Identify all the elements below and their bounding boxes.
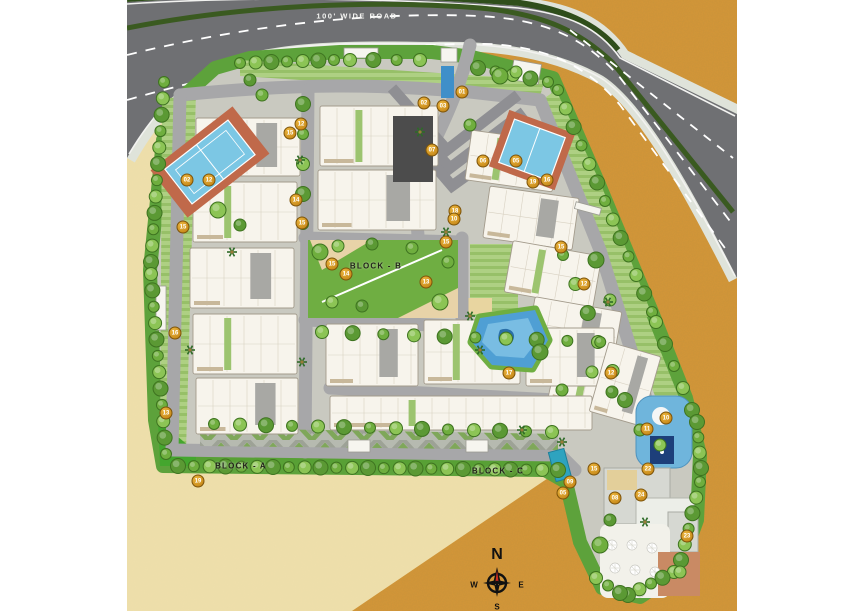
amenity-marker: 15: [296, 217, 309, 230]
compass-north-label: N: [491, 546, 503, 564]
amenity-marker: 24: [635, 489, 648, 502]
amenity-marker: 12: [578, 278, 591, 291]
amenity-marker: 16: [541, 174, 554, 187]
amenity-marker: 15: [326, 258, 339, 271]
amenity-marker: 16: [169, 327, 182, 340]
amenity-marker: 22: [642, 463, 655, 476]
amenity-marker: 03: [437, 100, 450, 113]
amenity-marker: 08: [609, 492, 622, 505]
amenity-marker: 11: [641, 423, 654, 436]
entry-water-feature: [441, 66, 454, 98]
amenity-marker: 15: [555, 241, 568, 254]
amenity-marker: 14: [340, 268, 353, 281]
amenity-marker: 15: [284, 127, 297, 140]
compass-south-label: S: [494, 603, 499, 611]
amenity-marker: 10: [660, 412, 673, 425]
amenity-marker: 12: [295, 118, 308, 131]
siteplan-illustration: [0, 0, 864, 611]
amenity-marker: 02: [181, 174, 194, 187]
masterplan-canvas: 100' WIDE ROAD BLOCK - ABLOCK - BBLOCK -…: [0, 0, 864, 611]
compass: N W E S: [452, 543, 544, 611]
amenity-marker: 19: [192, 475, 205, 488]
amenity-marker: 15: [588, 463, 601, 476]
amenity-marker: 15: [177, 221, 190, 234]
amenity-marker: 23: [681, 530, 694, 543]
amenity-marker: 19: [527, 176, 540, 189]
amenity-marker: 14: [290, 194, 303, 207]
amenity-marker: 10: [448, 213, 461, 226]
compass-west-label: W: [470, 581, 478, 590]
amenity-marker: 05: [510, 155, 523, 168]
amenity-marker: 05: [557, 487, 570, 500]
amenity-marker: 02: [418, 97, 431, 110]
compass-east-label: E: [518, 581, 523, 590]
amenity-marker: 01: [456, 86, 469, 99]
amenity-marker: 12: [203, 174, 216, 187]
amenity-marker: 15: [440, 236, 453, 249]
amenity-marker: 07: [426, 144, 439, 157]
amenity-marker: 12: [605, 367, 618, 380]
amenity-marker: 17: [503, 367, 516, 380]
amenity-marker: 13: [420, 276, 433, 289]
amenity-marker: 13: [160, 407, 173, 420]
amenity-marker: 06: [477, 155, 490, 168]
